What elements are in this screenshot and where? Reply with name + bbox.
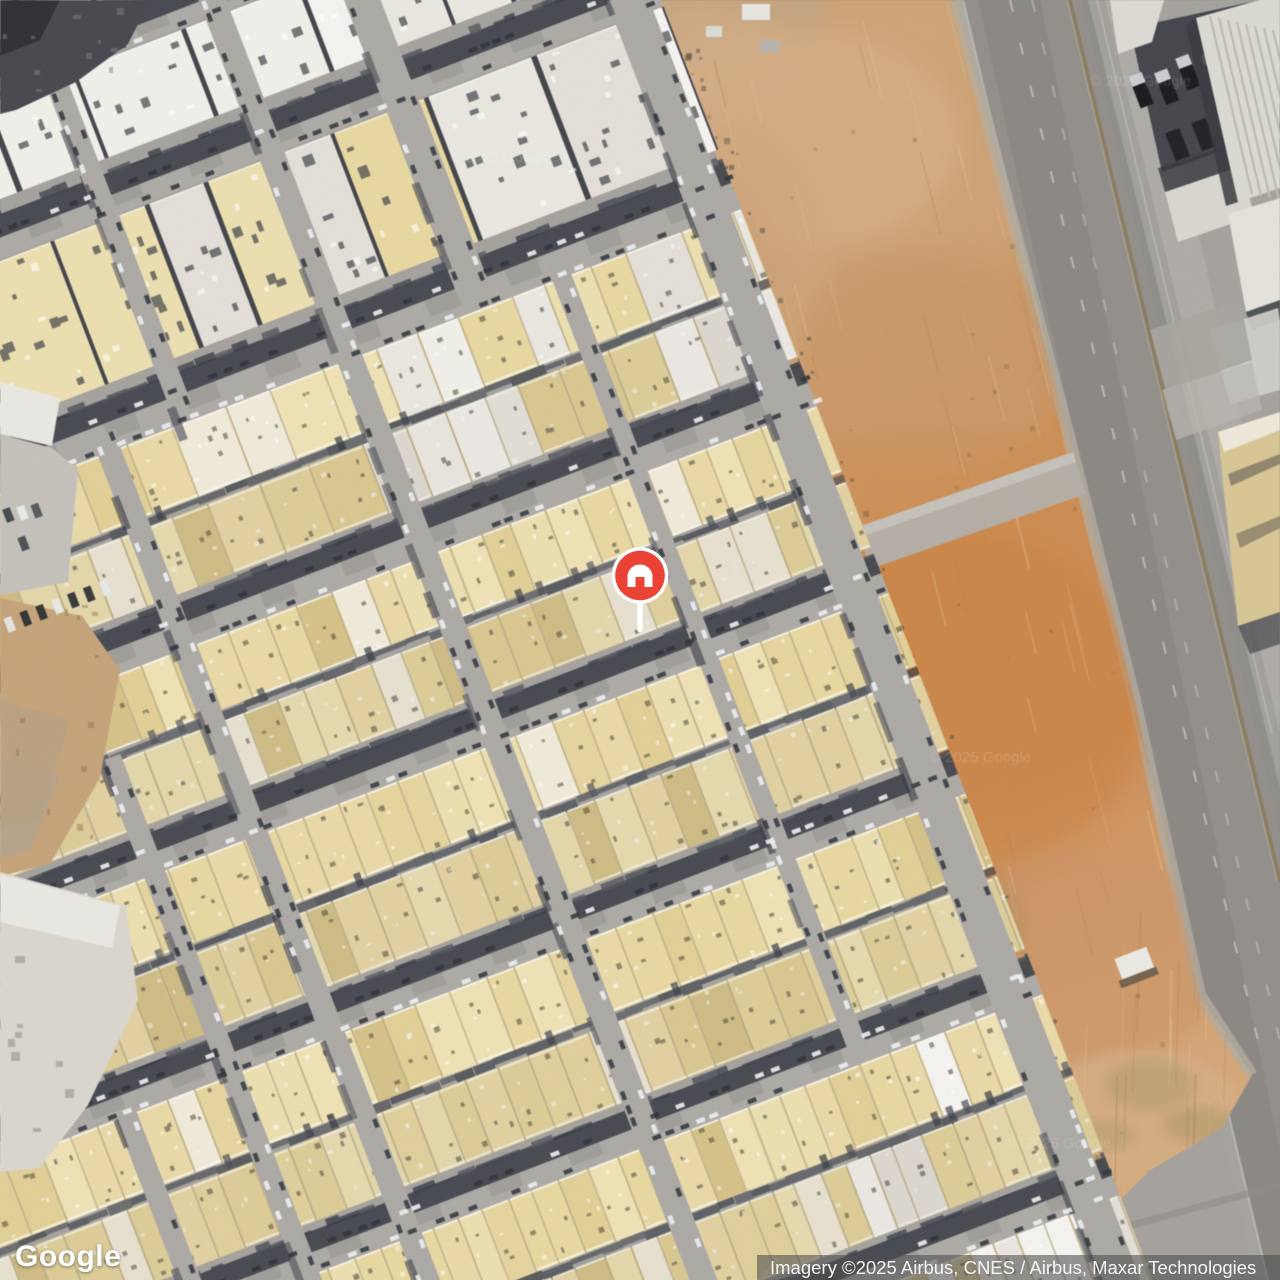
svg-text:Google: Google (15, 1240, 121, 1273)
svg-text:Imagery ©2025 Airbus, CNES / A: Imagery ©2025 Airbus, CNES / Airbus, Max… (770, 1257, 1256, 1278)
svg-text:© 2025 Google: © 2025 Google (450, 149, 551, 166)
svg-text:© 2025 Google: © 2025 Google (1090, 73, 1191, 90)
svg-text:© 2025 Google: © 2025 Google (930, 749, 1031, 766)
svg-text:© 2025 Google: © 2025 Google (1010, 1135, 1111, 1152)
